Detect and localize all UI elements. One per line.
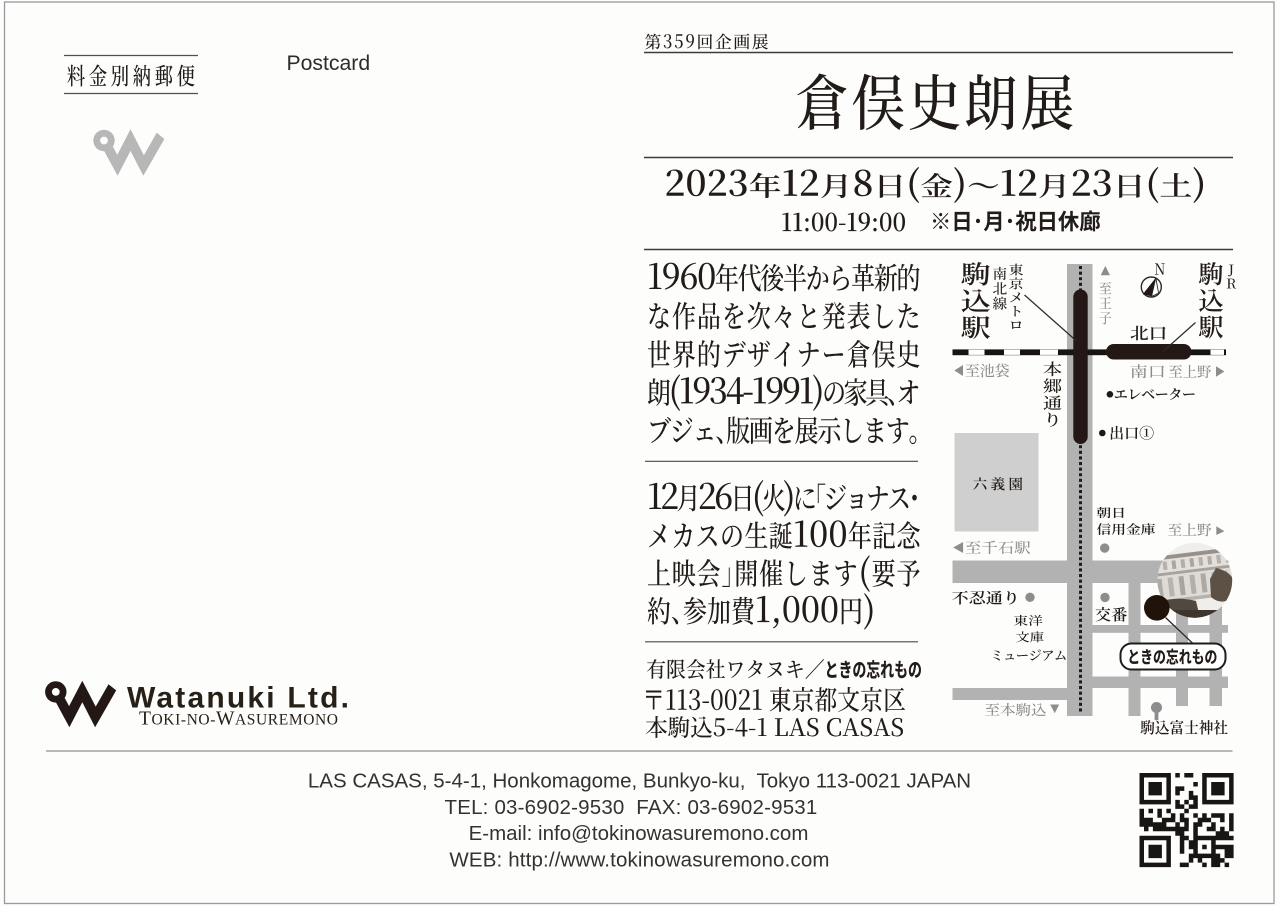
svg-text:Watanuki Ltd.: Watanuki Ltd. [127,682,351,715]
svg-text:LAS CASAS, 5-4-1, Honkomagome,: LAS CASAS, 5-4-1, Honkomagome, Bunkyo-ku… [308,770,971,793]
svg-text:TOKI-NO-WASUREMONO: TOKI-NO-WASUREMONO [139,709,339,730]
svg-text:Postcard: Postcard [287,52,371,75]
svg-text:E-mail: info@tokinowasuremono.: E-mail: info@tokinowasuremono.com [469,822,809,845]
svg-text:TEL: 03-6902-9530 FAX: 03-690: TEL: 03-6902-9530 FAX: 03-6902-9531 [444,796,817,819]
svg-text:WEB: http://www.tokinowasuremo: WEB: http://www.tokinowasuremono.com [449,849,829,872]
